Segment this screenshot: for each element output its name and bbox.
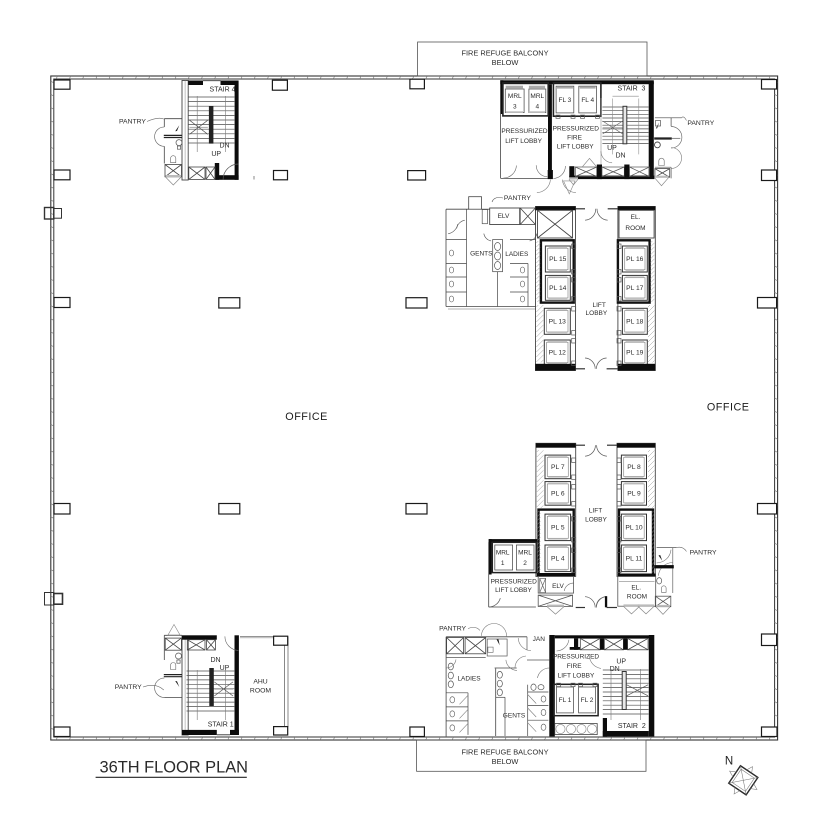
svg-text:ROOM: ROOM — [627, 594, 647, 601]
svg-text:LIFT: LIFT — [593, 302, 606, 309]
svg-text:DN: DN — [210, 657, 220, 664]
svg-text:PL 10: PL 10 — [625, 525, 643, 532]
svg-text:PL 16: PL 16 — [626, 256, 644, 263]
svg-text:ELV: ELV — [552, 583, 564, 590]
svg-text:LIFT LOBBY: LIFT LOBBY — [495, 587, 532, 594]
svg-text:FL 2: FL 2 — [581, 697, 594, 704]
svg-text:PL 6: PL 6 — [551, 491, 565, 498]
svg-text:UP: UP — [220, 665, 230, 672]
svg-text:FIRE REFUGE BALCONY: FIRE REFUGE BALCONY — [461, 747, 548, 756]
svg-text:DN: DN — [615, 152, 625, 159]
svg-text:MRL: MRL — [496, 550, 510, 557]
svg-text:EL.: EL. — [631, 584, 641, 591]
svg-text:LIFT LOBBY: LIFT LOBBY — [558, 672, 595, 679]
svg-text:LADIES: LADIES — [457, 676, 481, 683]
svg-text:OFFICE: OFFICE — [285, 411, 328, 423]
svg-text:FL 3: FL 3 — [559, 97, 572, 104]
svg-text:FIRE: FIRE — [567, 663, 582, 670]
svg-text:PANTRY: PANTRY — [115, 684, 142, 691]
svg-text:MRL: MRL — [530, 93, 544, 100]
svg-text:DN: DN — [219, 142, 229, 149]
svg-text:PRESSURIZED: PRESSURIZED — [553, 125, 600, 132]
svg-text:FIRE REFUGE BALCONY: FIRE REFUGE BALCONY — [461, 48, 548, 57]
svg-text:LOBBY: LOBBY — [585, 517, 607, 524]
svg-text:PANTRY: PANTRY — [504, 195, 531, 202]
svg-text:PRESSURIZED: PRESSURIZED — [491, 579, 538, 586]
svg-text:EL.: EL. — [631, 214, 641, 221]
svg-text:PANTRY: PANTRY — [119, 118, 146, 125]
svg-text:2: 2 — [523, 560, 527, 567]
svg-text:PL 7: PL 7 — [551, 464, 565, 471]
svg-text:PL 12: PL 12 — [549, 350, 567, 357]
svg-text:STAIR 1: STAIR 1 — [208, 721, 234, 728]
svg-text:3: 3 — [513, 104, 517, 111]
svg-text:BELOW: BELOW — [492, 757, 519, 766]
svg-text:PL 13: PL 13 — [549, 318, 567, 325]
svg-text:ELV: ELV — [498, 213, 510, 220]
svg-text:PL 9: PL 9 — [627, 491, 641, 498]
svg-text:LOBBY: LOBBY — [586, 310, 608, 317]
svg-text:UP: UP — [211, 151, 221, 158]
svg-text:PL 15: PL 15 — [549, 256, 567, 263]
svg-text:GENTS: GENTS — [470, 250, 493, 257]
svg-text:UP: UP — [607, 145, 617, 152]
svg-text:JAN: JAN — [533, 636, 546, 643]
svg-text:LIFT LOBBY: LIFT LOBBY — [557, 144, 594, 151]
svg-text:PL 5: PL 5 — [551, 525, 565, 532]
svg-text:LIFT LOBBY: LIFT LOBBY — [505, 138, 542, 145]
svg-text:AHU: AHU — [253, 679, 267, 686]
svg-text:STAIR 3: STAIR 3 — [618, 86, 646, 93]
svg-text:OFFICE: OFFICE — [707, 402, 750, 414]
svg-text:PANTRY: PANTRY — [687, 120, 714, 127]
svg-text:PRESSURIZED: PRESSURIZED — [553, 653, 600, 660]
svg-text:FL 1: FL 1 — [559, 697, 572, 704]
svg-text:LADIES: LADIES — [505, 251, 529, 258]
svg-text:N: N — [725, 755, 734, 767]
svg-text:STAIR 2: STAIR 2 — [618, 723, 646, 730]
svg-text:PL 11: PL 11 — [626, 555, 643, 562]
svg-text:UP: UP — [616, 658, 626, 665]
svg-text:PL 19: PL 19 — [626, 350, 644, 357]
svg-text:GENTS: GENTS — [503, 712, 526, 719]
svg-text:MRL: MRL — [518, 550, 532, 557]
svg-text:MRL: MRL — [508, 93, 522, 100]
svg-text:PANTRY: PANTRY — [690, 549, 717, 556]
svg-text:36TH FLOOR PLAN: 36TH FLOOR PLAN — [100, 759, 248, 777]
svg-text:PL 17: PL 17 — [626, 285, 644, 292]
svg-text:ROOM: ROOM — [625, 225, 645, 232]
svg-text:PANTRY: PANTRY — [439, 625, 466, 632]
svg-text:PRESSURIZED: PRESSURIZED — [501, 128, 548, 135]
svg-text:FL 4: FL 4 — [581, 97, 594, 104]
svg-text:ROOM: ROOM — [250, 688, 271, 695]
svg-text:FIRE: FIRE — [567, 134, 582, 141]
svg-text:4: 4 — [535, 104, 539, 111]
svg-text:1: 1 — [501, 560, 505, 567]
svg-text:BELOW: BELOW — [492, 58, 519, 67]
svg-text:PL 4: PL 4 — [551, 555, 565, 562]
svg-text:PL 18: PL 18 — [626, 318, 644, 325]
svg-text:PL 8: PL 8 — [627, 464, 641, 471]
svg-text:LIFT: LIFT — [589, 508, 602, 515]
svg-text:PL 14: PL 14 — [549, 285, 567, 292]
svg-text:STAIR 4: STAIR 4 — [210, 86, 236, 93]
